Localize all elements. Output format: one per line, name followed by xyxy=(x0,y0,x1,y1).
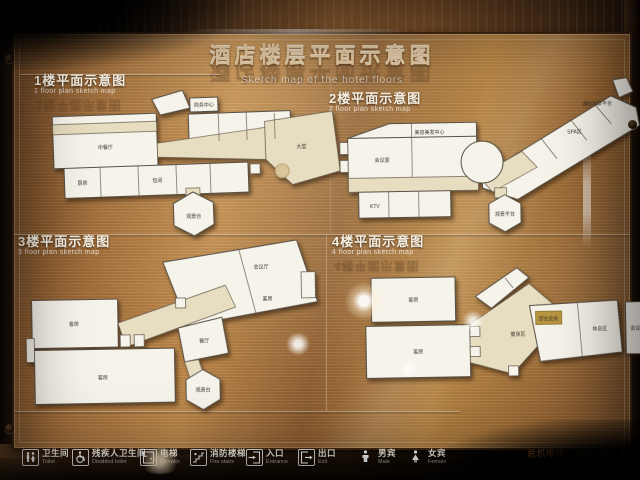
legend-label-zh: 入口 xyxy=(266,447,288,459)
floor2-room-label: 美容美发中心 xyxy=(414,129,444,137)
floor3-room-label: 客房 xyxy=(98,374,108,381)
entrance-icon xyxy=(246,449,263,466)
male-icon xyxy=(358,449,373,464)
floor1-label-zh: 1楼平面示意图 xyxy=(34,74,126,88)
floor1-room-label: 商务中心 xyxy=(194,101,214,109)
floor2-plan: 美容美发中心 会议室 KTV SPA区 观景平台 通往观景平台 xyxy=(331,77,640,237)
floor4-marker-label: 您在此处 xyxy=(539,315,559,322)
floor1-elevator-box xyxy=(250,164,260,174)
mounting-screw xyxy=(628,120,637,129)
floor2-room-label: 会议室 xyxy=(374,157,389,164)
floor2-elevator-box xyxy=(340,160,348,172)
floor4-room-label: 客房 xyxy=(408,297,418,304)
floor1-room-label: 中餐厅 xyxy=(98,144,113,152)
floor3-plan: 客房 客房 会议厅 客房 餐厅 观景台 xyxy=(25,237,333,414)
floor4-stair-box xyxy=(470,346,480,356)
floor3-elevator-box xyxy=(134,335,144,347)
legend-label-zh: 出口 xyxy=(318,447,336,459)
elevator-icon xyxy=(140,449,157,466)
legend-label-zh: 消防楼梯 xyxy=(210,447,246,459)
floor2-room-label: SPA区 xyxy=(567,129,582,135)
floor3-stair-box xyxy=(176,298,186,308)
floor4-label-en: 4 floor plan sketch map xyxy=(332,249,424,257)
floor2-elevator-box xyxy=(340,142,348,154)
floor3-room-label: 客房 xyxy=(69,321,79,328)
floor2-room-label: 观景平台 xyxy=(495,211,515,218)
mounting-screw xyxy=(5,424,14,433)
floor3-left-annex xyxy=(26,339,34,363)
floor2-round-hall xyxy=(461,141,504,184)
legend-label-zh: 残疾人卫生间 xyxy=(92,447,146,459)
floor1-plan: 中餐厅 商务中心 大堂 厨房 包间 观景台 xyxy=(39,83,344,248)
legend-label-zh: 男宾 xyxy=(378,447,396,459)
floor2-corridor xyxy=(348,176,478,192)
floor2-top-slant xyxy=(347,122,476,138)
floor1-round-feature xyxy=(275,164,289,178)
floor3-room-label: 客房 xyxy=(262,295,272,302)
female-icon xyxy=(408,449,423,464)
exit-icon xyxy=(298,449,315,466)
floor1-room-label: 包间 xyxy=(152,177,162,184)
floor4-room-label: 会议室 xyxy=(630,325,640,332)
floor3-right-annex xyxy=(301,272,315,298)
fire-stairs-icon xyxy=(190,449,207,466)
legend-label-en: Toilet xyxy=(42,459,69,465)
legend-label-en: Exit xyxy=(318,459,336,465)
shadow-corner xyxy=(0,0,240,70)
legend-label-en: Entrance xyxy=(266,459,288,465)
floor4-right-block xyxy=(529,300,622,362)
floor3-room-label: 餐厅 xyxy=(199,337,209,344)
legend-label-zh: 卫生间 xyxy=(42,447,69,459)
floor3-room-label: 观景台 xyxy=(196,386,211,393)
floor3-elevator-box xyxy=(120,335,130,347)
legend-label-en: Elevator xyxy=(160,459,180,465)
floor4-elevator-box xyxy=(470,326,480,336)
floor2-walkway-tip xyxy=(613,77,633,97)
wheelchair-icon xyxy=(72,449,89,466)
floor2-walkway-label: 通往观景平台 xyxy=(582,100,612,108)
floor1-room-label: 厨房 xyxy=(77,180,87,187)
floor4-plan: 客房 客房 健身区 您在此处 休息区 会议室 xyxy=(359,259,640,414)
floor2-room-label: KTV xyxy=(370,204,380,210)
floor1-room-label: 大堂 xyxy=(296,143,306,150)
bronze-sign-panel: 酒店楼层平面示意图 酒店楼层平面示意图 Sketch map of the ho… xyxy=(12,32,632,450)
floor4-elevator-box xyxy=(509,366,519,376)
legend-label-en: Fire stairs xyxy=(210,459,246,465)
floor4-room-label: 客房 xyxy=(413,348,423,355)
floor1-annex-room xyxy=(151,90,190,115)
floor1-room-label: 观景台 xyxy=(186,213,201,221)
legend-label-en: Male xyxy=(378,459,396,465)
legend-label-en: Disabled toilet xyxy=(92,459,146,465)
floor3-room-label: 会议厅 xyxy=(253,263,268,270)
toilet-icon xyxy=(22,449,39,466)
legend-label-zh: 电梯 xyxy=(160,447,180,459)
floor4-header: 4楼平面示意图 4 floor plan sketch map 4楼平面示意图 xyxy=(332,235,424,257)
shadow-corner xyxy=(440,420,640,480)
photo-of-hotel-floor-sign: 酒店楼层平面示意图 酒店楼层平面示意图 Sketch map of the ho… xyxy=(0,0,640,480)
floor4-room-label: 健身区 xyxy=(510,331,525,338)
floor4-room-label: 休息区 xyxy=(592,325,607,332)
